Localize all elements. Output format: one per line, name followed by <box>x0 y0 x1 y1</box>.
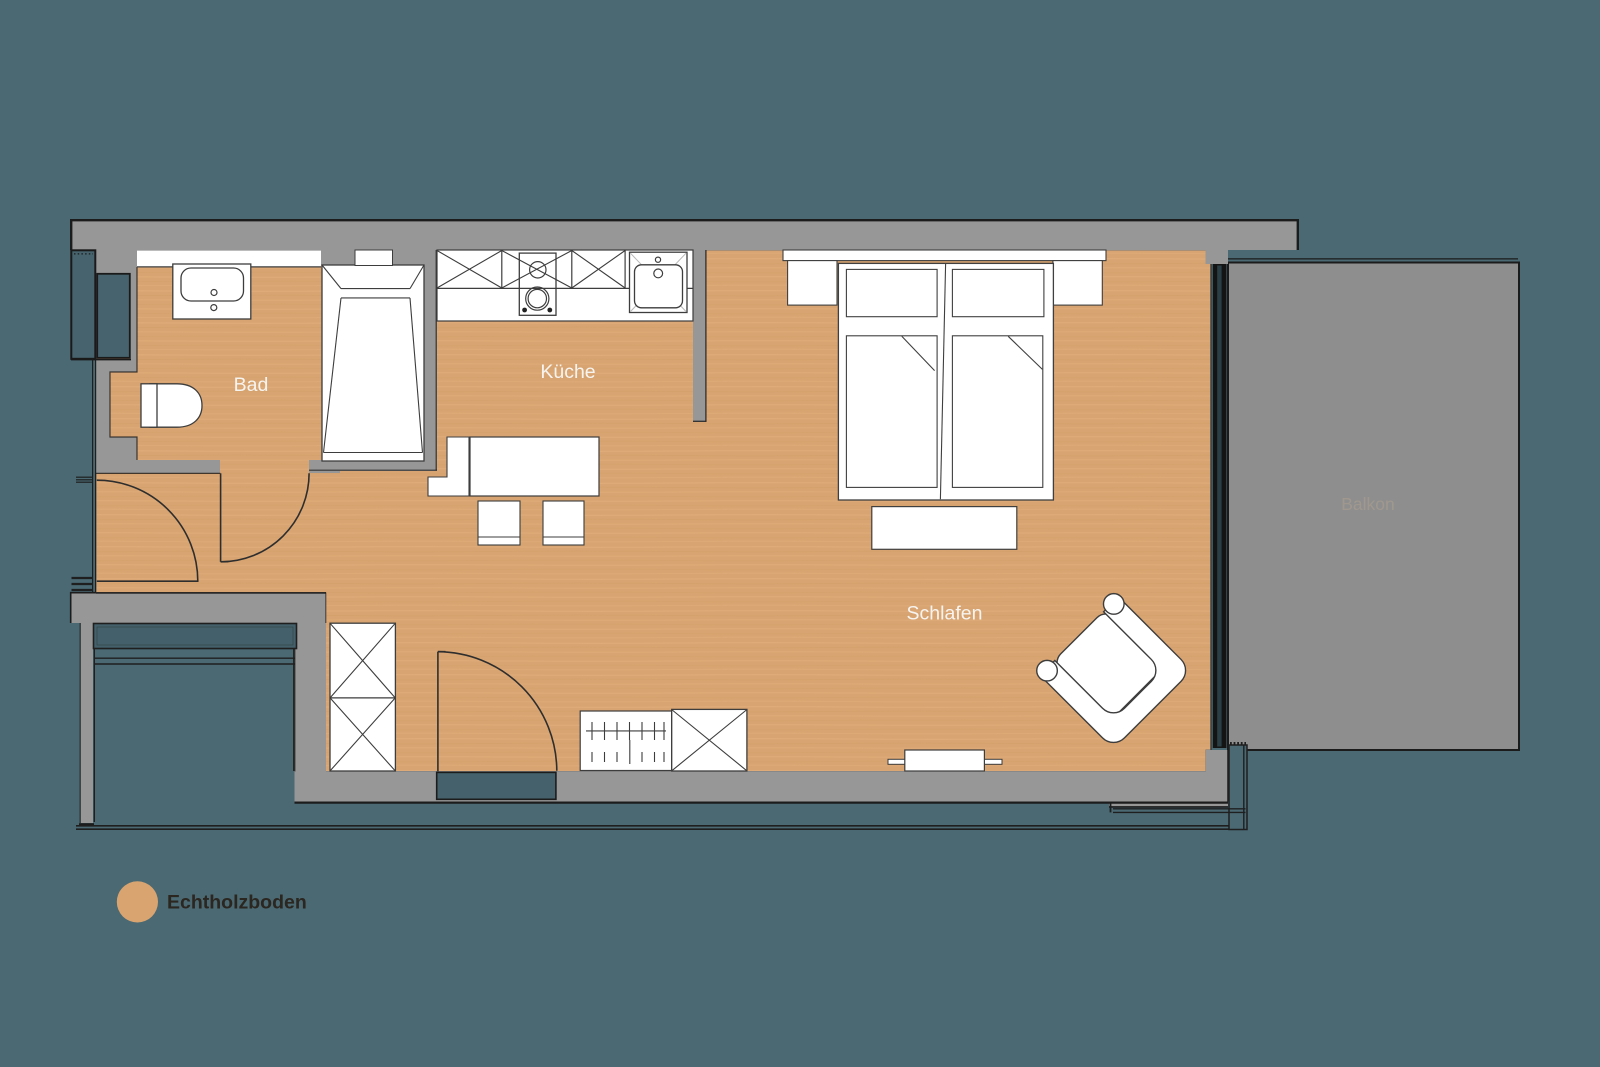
svg-text:Küche: Küche <box>540 361 595 383</box>
svg-text:Schlafen: Schlafen <box>907 603 983 625</box>
svg-text:Echtholzboden: Echtholzboden <box>167 892 307 914</box>
svg-text:Bad: Bad <box>234 374 269 396</box>
svg-text:Balkon: Balkon <box>1341 494 1395 514</box>
